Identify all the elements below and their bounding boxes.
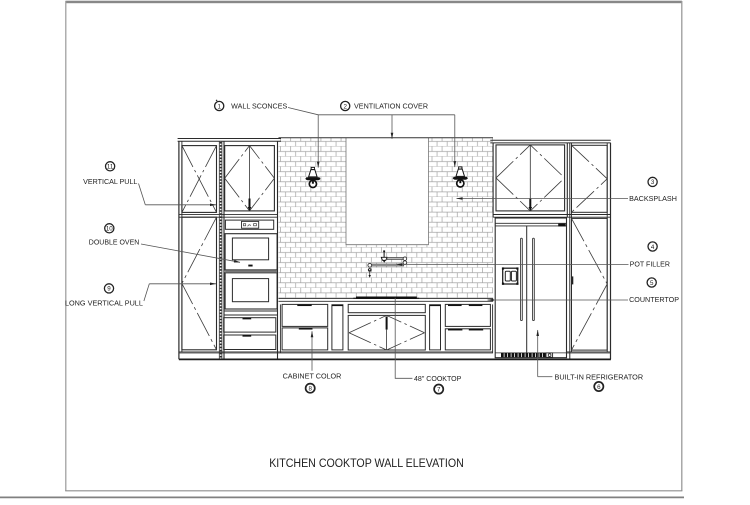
svg-text:3: 3 <box>651 179 655 186</box>
svg-text:WALL SCONCES: WALL SCONCES <box>231 104 287 111</box>
svg-text:BACKSPLASH: BACKSPLASH <box>629 196 677 203</box>
svg-text:2: 2 <box>343 103 347 110</box>
svg-text:VERTICAL PULL: VERTICAL PULL <box>83 179 137 186</box>
svg-text:KITCHEN COOKTOP WALL ELEVATION: KITCHEN COOKTOP WALL ELEVATION <box>269 456 464 470</box>
svg-text:4: 4 <box>651 244 655 251</box>
svg-text:10: 10 <box>106 226 113 233</box>
svg-text:8: 8 <box>308 386 312 393</box>
svg-text:BUILT-IN REFRIGERATOR: BUILT-IN REFRIGERATOR <box>555 375 644 382</box>
svg-text:9: 9 <box>107 286 111 293</box>
svg-text:1: 1 <box>217 103 221 110</box>
svg-text:VENTILATION COVER: VENTILATION COVER <box>354 104 428 111</box>
svg-text:COUNTERTOP: COUNTERTOP <box>629 297 679 304</box>
svg-text:CABINET COLOR: CABINET COLOR <box>283 374 342 381</box>
svg-text:7: 7 <box>437 386 441 393</box>
svg-text:POT FILLER: POT FILLER <box>630 262 670 269</box>
svg-text:11: 11 <box>107 164 114 171</box>
svg-text:5: 5 <box>650 280 654 287</box>
svg-text:DOUBLE OVEN: DOUBLE OVEN <box>89 239 140 246</box>
svg-text:6: 6 <box>597 384 601 391</box>
svg-text:LONG VERTICAL PULL: LONG VERTICAL PULL <box>65 301 143 308</box>
svg-text:48" COOKTOP: 48" COOKTOP <box>414 376 462 383</box>
